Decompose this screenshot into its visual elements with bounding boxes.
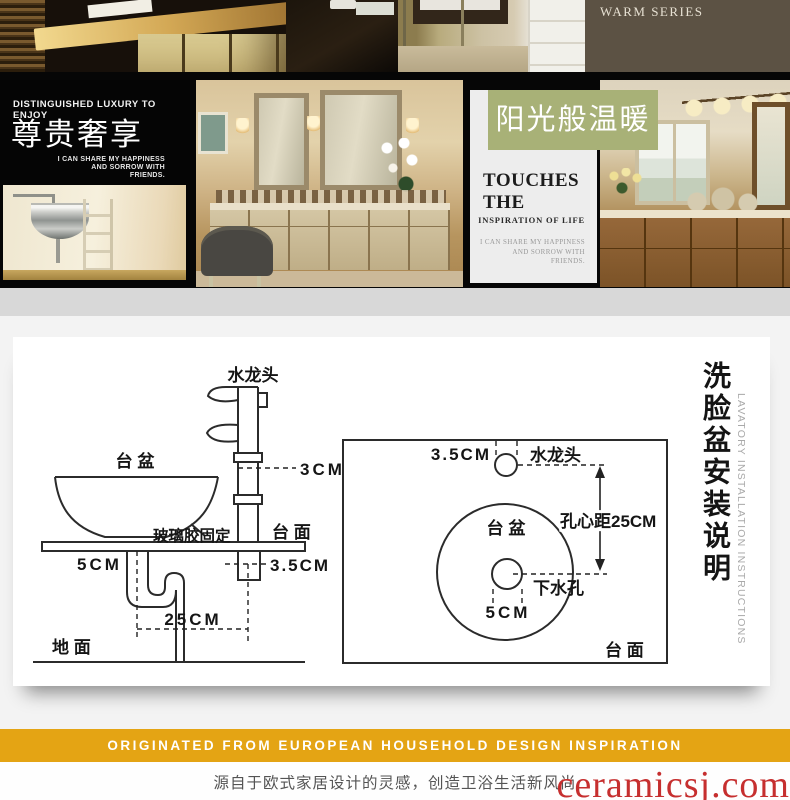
page: WARM SERIES DISTINGUISHED LUXURY TO ENJO… (0, 0, 790, 800)
orchid-flowers (378, 138, 420, 196)
sconce-lamp (307, 116, 320, 133)
footer-banner-text: ORIGINATED FROM EUROPEAN HOUSEHOLD DESIG… (107, 738, 682, 753)
dim-3-5cm-label: 3.5CM (270, 556, 330, 575)
tv-basin-label: 台 盆 (487, 518, 527, 538)
photo-dark-gold-bathroom (0, 0, 398, 72)
photo-vanity-mirrors (196, 80, 463, 287)
counter-label: 台 面 (272, 522, 311, 542)
luxury-caption-line: I CAN SHARE MY HAPPINESS (13, 156, 165, 164)
vanity-counter (210, 203, 450, 210)
dim-5cm-label: 5CM (77, 555, 122, 574)
hero-collage: WARM SERIES DISTINGUISHED LUXURY TO ENJO… (0, 0, 790, 288)
tv-dim-3-5cm-label: 3.5CM (431, 445, 491, 464)
drain-pipe (56, 239, 60, 263)
touches-caption-line: I CAN SHARE MY HAPPINESS (470, 238, 585, 248)
dim-3cm-label: 3CM (300, 460, 345, 479)
footer-strip: 源自于欧式家居设计的灵感，创造卫浴生活新风尚 ceramicsj.com (0, 762, 790, 800)
photo-shower-room (398, 0, 585, 72)
marble-counter (600, 210, 790, 218)
basin-label: 台 盆 (116, 451, 156, 471)
mirror-left (254, 93, 309, 190)
steel-bowl (31, 203, 89, 239)
tile-floor (398, 46, 530, 72)
cabinet-doors (138, 34, 286, 72)
chair (201, 226, 273, 276)
touches-subtitle: INSPIRATION OF LIFE (470, 215, 597, 225)
luxury-panel: DISTINGUISHED LUXURY TO ENJOY 尊贵奢享 I CAN… (0, 80, 190, 287)
baseboard (3, 270, 186, 280)
floor-label: 地 面 (52, 637, 91, 657)
touches-caption-line: AND SORROW WITH (470, 248, 585, 258)
dim-25cm-label: 25CM (164, 610, 221, 629)
diagram-title-en: LAVATORY INSTALLATION INSTRUCTIONS (735, 393, 747, 645)
wood-cabinets (600, 218, 790, 287)
sconce-lamp (406, 118, 419, 135)
drain-label: 下水孔 (533, 578, 584, 598)
diagram-title-cn: 洗脸盆安装说明 (695, 361, 735, 585)
glue-label: 玻璃胶固定 (153, 526, 231, 545)
watermark: ceramicsj.com (556, 766, 790, 800)
counter-sink (87, 0, 152, 18)
tv-dim-5cm-label: 5CM (486, 603, 531, 622)
tv-faucet-label: 水龙头 (530, 445, 581, 465)
luxury-title: 尊贵奢享 (11, 109, 143, 154)
installation-diagram: 水龙头 台 盆 3CM 玻璃胶固定 台 面 5CM 3.5CM 25CM 地 面… (13, 337, 770, 686)
top-view-drawing (343, 440, 667, 663)
touches-caption-line: FRIENDS. (470, 257, 585, 267)
installation-card: 水龙头 台 盆 3CM 玻璃胶固定 台 面 5CM 3.5CM 25CM 地 面… (13, 337, 770, 686)
sunshine-badge: 阳光般温暖 (488, 90, 658, 150)
bedding (420, 0, 500, 10)
wall-faucet-pipe (13, 194, 55, 197)
sconce-lamp (236, 118, 249, 135)
luxury-caption-line: FRIENDS. (13, 172, 165, 180)
warm-series-panel: WARM SERIES (585, 0, 790, 72)
towel (330, 0, 356, 9)
photo-steel-basin (3, 185, 186, 280)
luxury-caption-line: AND SORROW WITH (13, 164, 165, 172)
divider-band (0, 288, 790, 316)
tv-counter-label: 台 面 (605, 640, 644, 660)
footer-banner: ORIGINATED FROM EUROPEAN HOUSEHOLD DESIG… (0, 729, 790, 762)
touches-title: TOUCHES THE (470, 170, 597, 214)
mosaic-backsplash (216, 190, 446, 203)
rose-bouquet (606, 168, 648, 198)
faucet-label: 水龙头 (228, 365, 279, 385)
warm-series-label: WARM SERIES (585, 0, 790, 20)
touches-caption: I CAN SHARE MY HAPPINESS AND SORROW WITH… (470, 238, 597, 267)
hole-distance-label: 孔心距25CM (560, 512, 656, 531)
towel-ladder (83, 199, 113, 273)
luxury-caption: I CAN SHARE MY HAPPINESS AND SORROW WITH… (13, 156, 165, 180)
wall-art (198, 112, 228, 154)
white-cabinet (528, 0, 585, 72)
white-basin (356, 2, 394, 15)
